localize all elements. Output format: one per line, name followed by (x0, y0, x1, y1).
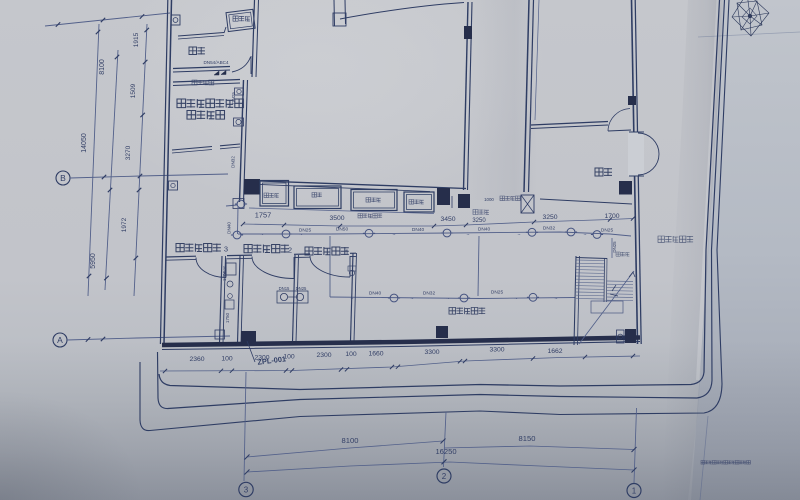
svg-text:1660: 1660 (368, 351, 383, 358)
svg-text:14050: 14050 (81, 133, 88, 153)
svg-text:3: 3 (244, 486, 249, 495)
svg-text:DN32: DN32 (231, 156, 236, 168)
svg-text:DN40: DN40 (369, 291, 382, 297)
svg-text:~: ~ (300, 233, 303, 239)
svg-text:2: 2 (288, 246, 292, 255)
svg-text:~: ~ (447, 297, 450, 303)
svg-text:~: ~ (515, 297, 518, 303)
svg-text:1: 1 (345, 248, 349, 257)
svg-text:DN25: DN25 (231, 92, 236, 104)
svg-text:~: ~ (518, 233, 521, 239)
svg-text:~: ~ (467, 233, 470, 239)
svg-text:DN25: DN25 (223, 265, 228, 276)
svg-text:DN25: DN25 (601, 228, 614, 234)
svg-text:5950: 5950 (90, 253, 97, 269)
svg-text:DN32: DN32 (423, 291, 436, 297)
svg-text:1972: 1972 (121, 217, 128, 232)
svg-text:1: 1 (632, 487, 637, 496)
svg-text:1000: 1000 (484, 197, 494, 202)
svg-text:3300: 3300 (489, 347, 504, 354)
svg-text:1750: 1750 (225, 312, 230, 323)
svg-text:100: 100 (345, 351, 357, 358)
svg-text:8150: 8150 (519, 434, 536, 443)
svg-text:100: 100 (283, 354, 295, 361)
svg-text:16250: 16250 (435, 447, 456, 456)
svg-text:DN25: DN25 (296, 286, 307, 291)
svg-text:DN40: DN40 (478, 227, 491, 233)
svg-text:~: ~ (411, 297, 414, 303)
svg-text:DN54/ABC4: DN54/ABC4 (203, 60, 228, 65)
svg-text:3250: 3250 (472, 218, 486, 224)
svg-text:~: ~ (261, 233, 264, 239)
svg-text:1662: 1662 (547, 348, 562, 355)
svg-text:3450: 3450 (440, 216, 455, 223)
svg-text:3300: 3300 (424, 349, 439, 356)
svg-text:DN15: DN15 (279, 286, 290, 291)
svg-text:DN25: DN25 (612, 241, 617, 253)
svg-text:A: A (57, 335, 63, 345)
svg-text:3270: 3270 (125, 145, 132, 160)
svg-text:~: ~ (584, 233, 587, 239)
svg-text:2: 2 (442, 472, 447, 481)
svg-text:2300: 2300 (254, 355, 269, 362)
svg-text:DN40: DN40 (227, 222, 232, 234)
svg-text:1757: 1757 (255, 211, 271, 220)
svg-text:DN25: DN25 (491, 290, 504, 296)
svg-text:100: 100 (221, 356, 233, 363)
svg-text:8100: 8100 (342, 436, 359, 445)
svg-text:3250: 3250 (542, 214, 557, 221)
svg-text:1915: 1915 (133, 32, 140, 47)
svg-text:B: B (60, 173, 66, 183)
svg-text:8100: 8100 (99, 59, 106, 75)
svg-text:2300: 2300 (316, 352, 331, 359)
svg-text:3500: 3500 (329, 215, 344, 222)
svg-text:2360: 2360 (189, 356, 204, 363)
svg-text:~: ~ (393, 233, 396, 239)
svg-text:1509: 1509 (130, 83, 137, 98)
svg-text:~: ~ (555, 297, 558, 303)
svg-text:DN50: DN50 (336, 227, 349, 233)
svg-text:DN32: DN32 (543, 226, 556, 232)
svg-text:DN40: DN40 (412, 227, 425, 233)
svg-text:3: 3 (224, 245, 228, 254)
